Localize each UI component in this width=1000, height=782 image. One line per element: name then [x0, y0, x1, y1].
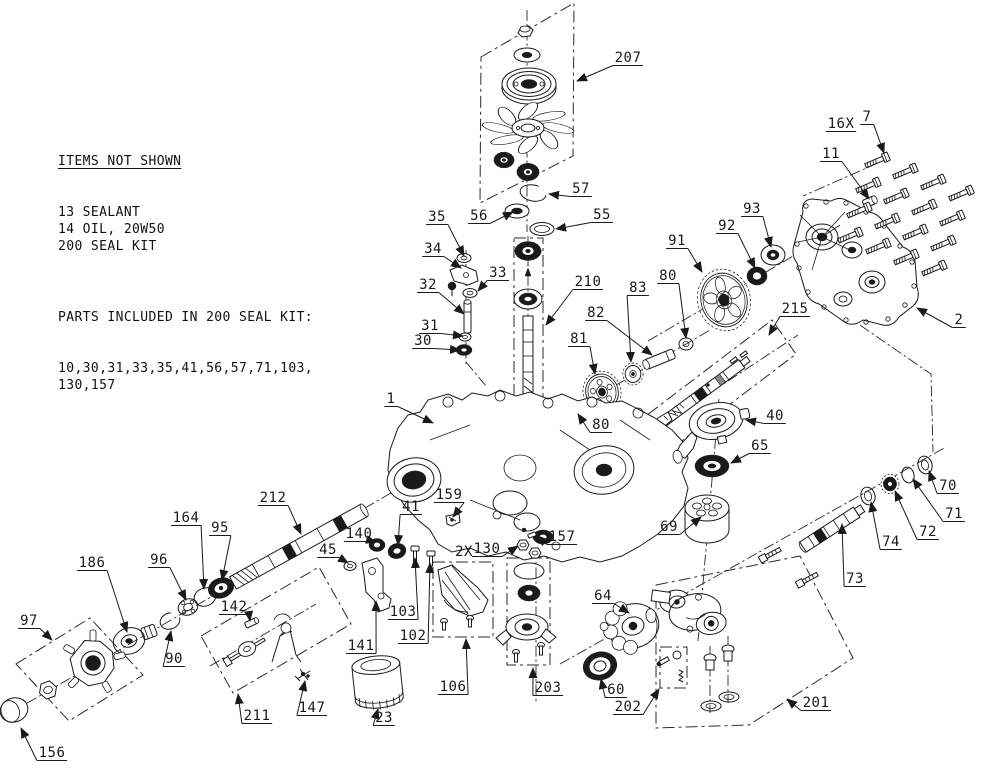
svg-text:16X: 16X — [828, 116, 855, 132]
part-147-clip — [295, 669, 310, 681]
part-label-201: 201 — [787, 695, 831, 711]
svg-text:31: 31 — [421, 318, 439, 334]
svg-text:203: 203 — [535, 680, 562, 696]
svg-text:141: 141 — [348, 638, 375, 654]
svg-text:164: 164 — [173, 510, 200, 526]
svg-text:65: 65 — [751, 438, 769, 454]
part-31-washer — [459, 333, 471, 341]
part-35-washer — [457, 254, 471, 263]
svg-text:207: 207 — [615, 50, 642, 66]
svg-text:83: 83 — [629, 280, 647, 296]
box-203-cap-kit — [507, 558, 550, 665]
part-label-211: 211 — [238, 694, 272, 724]
part-60-ring — [580, 648, 620, 684]
svg-text:72: 72 — [919, 524, 937, 540]
part-102-bolt — [427, 551, 435, 566]
svg-text:56: 56 — [470, 208, 488, 224]
svg-text:2X: 2X — [455, 544, 473, 560]
part-82-idler-shaft — [641, 349, 675, 371]
exploded-parts-diagram-page: ITEMS NOT SHOWN 13 SEALANT14 OIL, 20W502… — [0, 0, 1000, 782]
pump-shaft-bearing — [514, 289, 542, 309]
svg-text:1: 1 — [387, 391, 396, 407]
pump-mount-bolts — [758, 546, 819, 588]
part-207-fan-pulley-group — [480, 26, 577, 181]
part-label-103: 103 — [388, 558, 418, 620]
svg-text:130: 130 — [474, 541, 501, 557]
fan-hub-spacer — [517, 163, 539, 180]
part-label-164: 164 — [171, 510, 204, 589]
part-label-55: 55 — [556, 207, 613, 229]
part-label-40: 40 — [746, 408, 786, 424]
svg-text:156: 156 — [39, 745, 66, 761]
svg-text:212: 212 — [260, 490, 287, 506]
part-label-57: 57 — [549, 181, 592, 197]
part-7-screw — [883, 188, 910, 206]
part-label-186: 186 — [77, 555, 127, 632]
part-label-212: 212 — [258, 490, 301, 534]
part-label-70: 70 — [929, 471, 959, 494]
part-label-140: 140 — [344, 526, 376, 542]
part-7-screw — [911, 199, 938, 217]
part-156-dust-cap — [0, 694, 31, 726]
part-203-cap-assembly — [496, 563, 556, 662]
part-label-65: 65 — [731, 438, 771, 463]
part-label-72: 72 — [895, 491, 939, 540]
svg-text:71: 71 — [945, 506, 963, 522]
svg-text:102: 102 — [400, 628, 427, 644]
part-7-screw — [920, 174, 947, 192]
svg-text:69: 69 — [660, 519, 678, 535]
part-label-2X: 2X — [455, 544, 473, 560]
part-label-203: 203 — [533, 668, 563, 696]
part-56-washer — [505, 204, 529, 218]
part-label-92: 92 — [716, 218, 755, 268]
part-142-pin — [244, 617, 259, 628]
svg-text:202: 202 — [615, 699, 642, 715]
svg-text:106: 106 — [440, 679, 467, 695]
pump-plugs-washers — [701, 645, 739, 711]
svg-text:96: 96 — [150, 552, 168, 568]
svg-text:91: 91 — [668, 233, 686, 249]
part-label-41: 41 — [398, 499, 422, 545]
part-label-215: 215 — [769, 301, 810, 335]
svg-text:215: 215 — [782, 301, 809, 317]
hub-nut — [37, 679, 59, 700]
part-label-93: 93 — [741, 201, 771, 247]
part-label-82: 82 — [585, 305, 652, 355]
part-73-output-shaft — [798, 503, 866, 553]
part-label-74: 74 — [871, 502, 902, 550]
svg-text:90: 90 — [165, 651, 183, 667]
part-label-156: 156 — [21, 728, 67, 761]
part-92-washer — [747, 267, 767, 285]
svg-text:57: 57 — [572, 181, 590, 197]
part-label-16X: 16X — [826, 116, 856, 132]
svg-text:103: 103 — [390, 604, 417, 620]
svg-text:32: 32 — [419, 277, 437, 293]
fan-pulley — [502, 68, 556, 104]
part-label-90: 90 — [163, 631, 185, 667]
part-57-snap-ring — [519, 182, 548, 203]
svg-text:92: 92 — [718, 218, 736, 234]
part-7-screw — [902, 224, 929, 242]
part-label-97: 97 — [18, 613, 52, 640]
svg-text:64: 64 — [594, 588, 612, 604]
bracket-screws — [441, 616, 474, 631]
svg-text:74: 74 — [882, 534, 900, 550]
part-label-73: 73 — [842, 524, 866, 587]
svg-text:142: 142 — [221, 599, 248, 615]
svg-text:81: 81 — [570, 331, 588, 347]
part-7-screw — [855, 177, 882, 195]
part-32-brake-pin — [464, 300, 471, 333]
part-label-106: 106 — [438, 639, 468, 695]
part-106-mounting-bracket — [438, 565, 488, 630]
part-7-screw — [864, 152, 891, 170]
svg-text:157: 157 — [549, 529, 576, 545]
part-211-brake-assembly — [223, 614, 301, 666]
svg-text:211: 211 — [244, 708, 271, 724]
part-label-2: 2 — [917, 308, 966, 328]
svg-text:11: 11 — [822, 146, 840, 162]
svg-text:80: 80 — [592, 417, 610, 433]
part-label-34: 34 — [422, 241, 461, 268]
part-7-screw — [921, 260, 948, 278]
part-23-oil-filter — [351, 654, 404, 712]
part-label-64: 64 — [592, 588, 629, 613]
part-55-o-ring — [530, 223, 554, 236]
svg-text:7: 7 — [863, 109, 872, 125]
svg-text:45: 45 — [319, 542, 337, 558]
part-label-95: 95 — [209, 520, 231, 580]
part-65-seal-ring — [695, 455, 729, 477]
part-72-bevel-gear — [881, 475, 899, 494]
part-label-142: 142 — [219, 599, 250, 621]
part-70-washer — [916, 454, 934, 475]
part-label-45: 45 — [317, 542, 348, 563]
cooling-fan — [480, 101, 577, 155]
svg-text:80: 80 — [659, 268, 677, 284]
part-45-washer — [344, 562, 356, 571]
part-69-cylinder-block — [685, 495, 729, 543]
assembly-boxes — [16, 3, 853, 728]
svg-text:60: 60 — [607, 682, 625, 698]
svg-text:34: 34 — [424, 241, 442, 257]
exploded-diagram: 20757565535343332313021016X7119392912215… — [0, 0, 1000, 782]
part-label-33: 33 — [478, 265, 509, 291]
svg-text:95: 95 — [211, 520, 229, 536]
part-83-pinion-gear — [623, 363, 643, 385]
svg-text:40: 40 — [766, 408, 784, 424]
part-74-washer — [859, 485, 877, 506]
part-label-7: 7 — [860, 109, 884, 153]
splined-collar — [140, 624, 157, 640]
svg-text:186: 186 — [79, 555, 106, 571]
part-41-seal — [386, 541, 407, 560]
part-7-screw — [892, 163, 919, 181]
svg-text:97: 97 — [20, 613, 38, 629]
svg-text:82: 82 — [587, 305, 605, 321]
svg-text:210: 210 — [575, 274, 602, 290]
svg-text:2: 2 — [955, 312, 964, 328]
part-label-141: 141 — [346, 601, 376, 654]
svg-text:33: 33 — [489, 265, 507, 281]
svg-text:73: 73 — [846, 571, 864, 587]
svg-text:30: 30 — [414, 333, 432, 349]
part-93-seal — [761, 245, 785, 265]
part-33-washer — [463, 289, 477, 298]
part-label-96: 96 — [148, 552, 186, 600]
svg-text:93: 93 — [743, 201, 761, 217]
part-label-91: 91 — [666, 233, 702, 272]
part-label-81: 81 — [568, 331, 595, 374]
part-label-30: 30 — [412, 333, 460, 350]
part-label-147: 147 — [297, 681, 327, 716]
part-label-207: 207 — [577, 50, 643, 81]
part-212-axle-shaft — [230, 503, 370, 589]
part-label-32: 32 — [417, 277, 464, 314]
svg-text:147: 147 — [299, 700, 326, 716]
svg-text:55: 55 — [593, 207, 611, 223]
part-label-23: 23 — [373, 709, 395, 726]
cap-screws — [513, 643, 545, 663]
svg-text:41: 41 — [402, 499, 420, 515]
fan-hub — [494, 152, 514, 168]
part-7-screw — [948, 185, 975, 203]
part-7-screw — [939, 210, 966, 228]
svg-text:159: 159 — [436, 487, 463, 503]
svg-text:140: 140 — [346, 526, 373, 542]
part-7-screw — [930, 235, 957, 253]
svg-text:70: 70 — [939, 478, 957, 494]
svg-text:35: 35 — [428, 209, 446, 225]
svg-text:23: 23 — [375, 710, 393, 726]
part-210-pump-shaft-assembly — [514, 242, 542, 412]
svg-text:201: 201 — [803, 695, 830, 711]
part-label-60: 60 — [601, 679, 627, 698]
